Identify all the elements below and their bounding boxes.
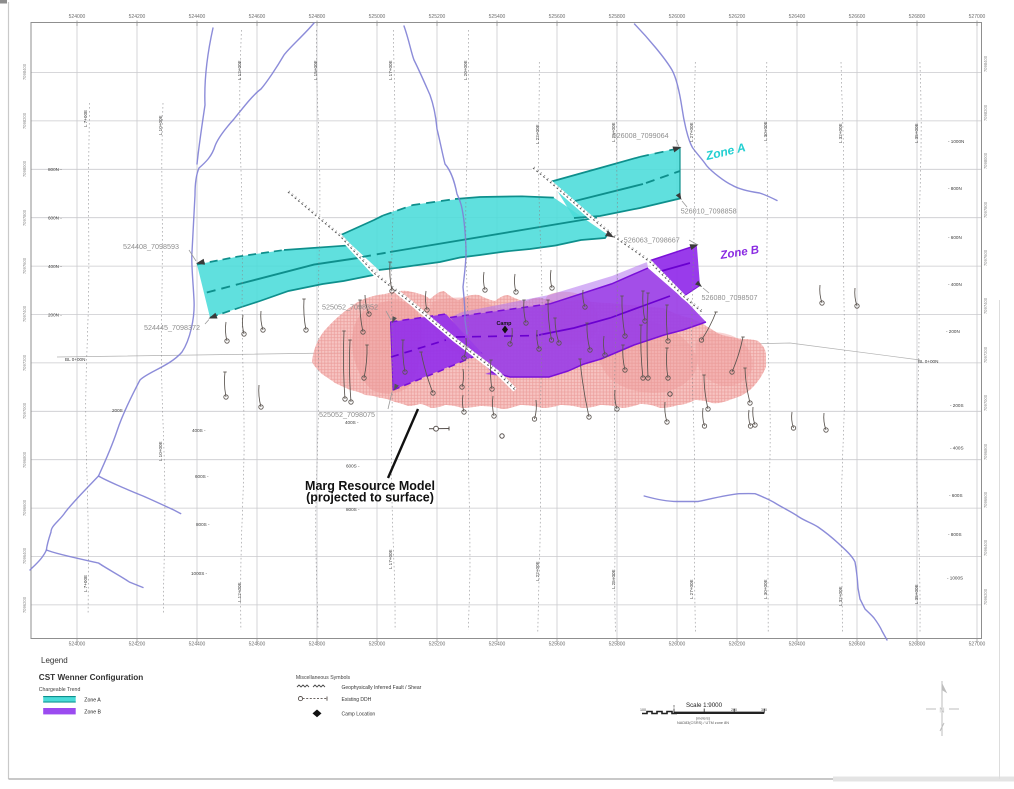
svg-text:524408_7098593: 524408_7098593	[123, 242, 179, 251]
svg-text:7098400: 7098400	[983, 55, 988, 72]
svg-text:7096400: 7096400	[22, 547, 27, 564]
svg-text:0: 0	[673, 705, 675, 709]
svg-text:800S -: 800S -	[346, 507, 360, 512]
svg-text:- 400N: - 400N	[948, 282, 962, 287]
svg-text:L 27+00E: L 27+00E	[689, 122, 694, 142]
svg-text:L 10+00E: L 10+00E	[158, 115, 163, 135]
svg-text:Legend: Legend	[41, 656, 68, 665]
svg-text:7097400: 7097400	[983, 297, 988, 314]
svg-text:(projected to surface): (projected to surface)	[306, 491, 434, 505]
svg-text:L 22+00E: L 22+00E	[535, 561, 540, 581]
svg-text:525052_7098075: 525052_7098075	[319, 410, 375, 419]
svg-text:Existing DDH: Existing DDH	[342, 697, 372, 703]
svg-text:525200: 525200	[429, 14, 446, 20]
svg-text:7096400: 7096400	[983, 539, 988, 556]
svg-text:526600: 526600	[849, 642, 866, 648]
svg-text:- 200S: - 200S	[950, 403, 964, 408]
svg-text:524200: 524200	[129, 14, 146, 20]
svg-text:7097000: 7097000	[22, 402, 27, 419]
svg-text:400S -: 400S -	[345, 420, 359, 425]
svg-text:7097800: 7097800	[22, 209, 27, 226]
svg-text:L 17+00E: L 17+00E	[388, 549, 393, 569]
svg-text:526200: 526200	[729, 642, 746, 648]
svg-text:BL 0+00N: BL 0+00N	[65, 357, 85, 362]
svg-text:Zone B: Zone B	[84, 709, 101, 715]
svg-text:200: 200	[731, 708, 737, 712]
svg-text:7097200: 7097200	[22, 354, 27, 371]
svg-text:Zone B: Zone B	[719, 244, 760, 262]
svg-text:526800: 526800	[909, 642, 926, 648]
svg-text:L 7+00E: L 7+00E	[83, 575, 88, 592]
svg-text:7097400: 7097400	[22, 305, 27, 322]
svg-text:524600: 524600	[249, 14, 266, 20]
svg-text:7097800: 7097800	[983, 201, 988, 218]
svg-text:7097000: 7097000	[983, 394, 988, 411]
svg-text:L 30+00E: L 30+00E	[763, 121, 768, 141]
svg-text:L 25+00E: L 25+00E	[611, 569, 616, 589]
svg-text:800N -: 800N -	[48, 167, 62, 172]
svg-text:600S -: 600S -	[195, 474, 209, 479]
svg-text:525400: 525400	[489, 642, 506, 648]
svg-text:526080_7098507: 526080_7098507	[702, 293, 758, 302]
svg-text:7096200: 7096200	[22, 596, 27, 613]
svg-text:200N -: 200N -	[48, 313, 62, 318]
svg-text:L 20+00E: L 20+00E	[463, 60, 468, 80]
svg-text:- 800S: - 800S	[948, 532, 962, 537]
svg-text:BL 0+00N: BL 0+00N	[918, 359, 938, 364]
svg-text:526600: 526600	[849, 14, 866, 20]
svg-text:525052_7098352: 525052_7098352	[322, 303, 378, 312]
svg-text:7097600: 7097600	[983, 249, 988, 266]
svg-text:7097200: 7097200	[983, 346, 988, 363]
svg-text:526000: 526000	[669, 642, 686, 648]
svg-text:524200: 524200	[129, 642, 146, 648]
svg-text:7098400: 7098400	[22, 63, 27, 80]
svg-text:526400: 526400	[789, 642, 806, 648]
svg-text:524800: 524800	[309, 14, 326, 20]
svg-text:524400: 524400	[189, 642, 206, 648]
svg-text:7096200: 7096200	[983, 588, 988, 605]
svg-text:526800: 526800	[909, 14, 926, 20]
svg-text:7096600: 7096600	[22, 499, 27, 516]
svg-text:524000: 524000	[69, 642, 86, 648]
svg-text:800S -: 800S -	[196, 522, 210, 527]
svg-text:L 22+00E: L 22+00E	[535, 124, 540, 144]
svg-text:L 27+00E: L 27+00E	[689, 579, 694, 599]
svg-text:525000: 525000	[369, 642, 386, 648]
svg-text:L 35+00E: L 35+00E	[914, 123, 919, 143]
svg-text:- 200N: - 200N	[946, 329, 960, 334]
svg-text:L 12+00E: L 12+00E	[237, 582, 242, 602]
svg-text:524445_7098372: 524445_7098372	[144, 323, 200, 332]
svg-text:L 32+00E: L 32+00E	[838, 586, 843, 606]
svg-text:7098200: 7098200	[22, 112, 27, 129]
svg-text:527000: 527000	[969, 14, 986, 20]
svg-text:7096800: 7096800	[983, 443, 988, 460]
svg-text:7098200: 7098200	[983, 104, 988, 121]
svg-text:- 800N: - 800N	[948, 186, 962, 191]
svg-text:L 35+00E: L 35+00E	[914, 584, 919, 604]
svg-text:525200: 525200	[429, 642, 446, 648]
svg-text:Camp: Camp	[497, 321, 513, 327]
svg-text:7098000: 7098000	[22, 160, 27, 177]
svg-text:L 17+00E: L 17+00E	[388, 60, 393, 80]
svg-text:Chargeable Trend: Chargeable Trend	[39, 687, 81, 693]
svg-text:L 32+00E: L 32+00E	[838, 123, 843, 143]
svg-text:Scale 1:9000: Scale 1:9000	[686, 702, 723, 709]
svg-text:L 30+00E: L 30+00E	[763, 579, 768, 599]
svg-text:400N -: 400N -	[48, 264, 62, 269]
svg-text:526063_7098667: 526063_7098667	[624, 236, 680, 245]
svg-text:600N -: 600N -	[48, 216, 62, 221]
svg-text:Zone A: Zone A	[704, 140, 747, 163]
svg-text:524600: 524600	[249, 642, 266, 648]
svg-text:- 600S: - 600S	[949, 493, 963, 498]
svg-text:526400: 526400	[789, 14, 806, 20]
svg-text:525800: 525800	[609, 642, 626, 648]
svg-text:527000: 527000	[969, 642, 986, 648]
svg-text:Miscellaneous Symbols: Miscellaneous Symbols	[296, 675, 351, 681]
svg-text:300: 300	[761, 708, 767, 712]
svg-text:525600: 525600	[549, 642, 566, 648]
svg-text:- 400S: - 400S	[950, 446, 964, 451]
svg-text:L 7+00E: L 7+00E	[83, 110, 88, 127]
svg-text:Zone A: Zone A	[84, 697, 101, 703]
svg-text:400S -: 400S -	[192, 428, 206, 433]
svg-text:526008_7099064: 526008_7099064	[613, 131, 669, 140]
svg-text:525000: 525000	[369, 14, 386, 20]
svg-text:- 600N: - 600N	[948, 235, 962, 240]
svg-text:L 15+00E: L 15+00E	[313, 60, 318, 80]
svg-text:526010_7098858: 526010_7098858	[681, 207, 737, 216]
svg-text:- 1000N: - 1000N	[948, 139, 964, 144]
svg-text:- 1000S: - 1000S	[947, 576, 963, 581]
svg-text:524000: 524000	[69, 14, 86, 20]
svg-text:524400: 524400	[189, 14, 206, 20]
svg-text:Camp Location: Camp Location	[342, 712, 376, 718]
svg-text:N: N	[939, 706, 944, 715]
svg-text:7098000: 7098000	[983, 152, 988, 169]
svg-text:NAD83(CSRS) / UTM zone 8N: NAD83(CSRS) / UTM zone 8N	[677, 721, 729, 725]
svg-text:CST Wenner Configuration: CST Wenner Configuration	[39, 673, 143, 682]
svg-text:L 10+00E: L 10+00E	[158, 441, 163, 461]
svg-text:L 12+00E: L 12+00E	[237, 60, 242, 80]
svg-text:1000S -: 1000S -	[191, 571, 208, 576]
svg-text:7096800: 7096800	[22, 451, 27, 468]
svg-text:100: 100	[640, 708, 646, 712]
svg-text:525400: 525400	[489, 14, 506, 20]
svg-text:526000: 526000	[669, 14, 686, 20]
svg-text:525600: 525600	[549, 14, 566, 20]
svg-text:7097600: 7097600	[22, 257, 27, 274]
svg-text:Geophysically Inferred Fault /: Geophysically Inferred Fault / Shear	[342, 685, 422, 691]
svg-text:600S -: 600S -	[346, 464, 360, 469]
svg-text:524800: 524800	[309, 642, 326, 648]
svg-text:525800: 525800	[609, 14, 626, 20]
svg-text:526200: 526200	[729, 14, 746, 20]
svg-text:7096600: 7096600	[983, 491, 988, 508]
